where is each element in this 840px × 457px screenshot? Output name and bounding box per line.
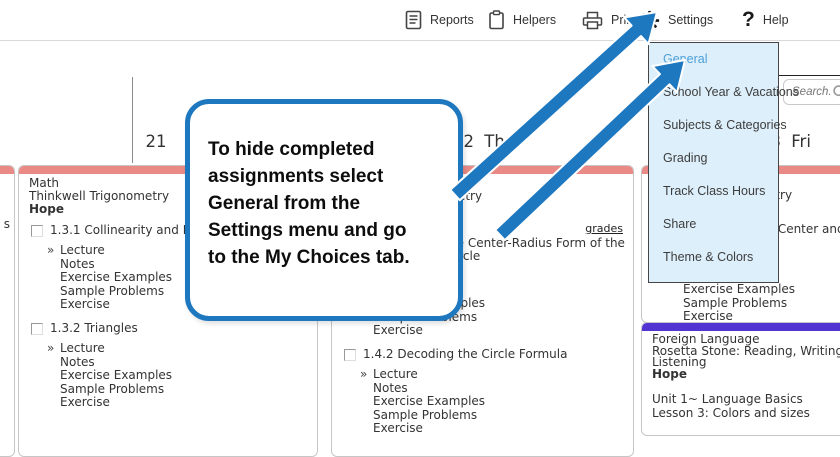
- lesson-section-row: 1.3.2 Triangles: [29, 322, 309, 335]
- lesson-item-link[interactable]: Exercise Examples: [60, 270, 172, 284]
- day-card-previous: s: [0, 165, 15, 457]
- item-marker-icon: »: [360, 368, 367, 382]
- lesson-item-link[interactable]: Exercise: [373, 421, 423, 435]
- lesson-section-title: 1.3.2 Triangles: [50, 322, 138, 335]
- day-card-23-foreign-language: Foreign LanguageRosetta Stone: Reading, …: [641, 322, 840, 436]
- grades-link[interactable]: grades: [585, 222, 623, 235]
- lesson-item-link[interactable]: Notes: [373, 381, 408, 395]
- lesson-item-link[interactable]: Exercise Examples: [60, 368, 172, 382]
- menu-item-track-class-hours[interactable]: Track Class Hours: [649, 175, 778, 208]
- print-button[interactable]: Print: [582, 0, 637, 40]
- menu-item-general[interactable]: General: [649, 43, 778, 76]
- lesson-section-title: 1.4.2 Decoding the Circle Formula: [363, 348, 567, 361]
- lesson-item: Sample Problems: [60, 383, 309, 397]
- lesson-item: »Lecture: [373, 368, 625, 382]
- lesson-line: Unit 1~ Language Basics: [652, 392, 840, 406]
- instruction-callout-text: To hide completed assignments select Gen…: [208, 136, 458, 271]
- menu-item-theme-colors[interactable]: Theme & Colors: [649, 241, 778, 274]
- helpers-button[interactable]: Helpers: [488, 0, 556, 40]
- help-icon: ?: [742, 10, 755, 30]
- lesson-item-link[interactable]: Exercise: [60, 297, 110, 311]
- lesson-item-link[interactable]: Exercise: [60, 395, 110, 409]
- menu-item-share[interactable]: Share: [649, 208, 778, 241]
- lesson-item: Exercise: [373, 324, 625, 338]
- reports-label: Reports: [430, 13, 474, 27]
- lesson-item-link[interactable]: Sample Problems: [60, 284, 164, 298]
- assignment-checkbox[interactable]: [344, 349, 356, 361]
- lesson-item: Notes: [60, 356, 309, 370]
- lesson-item-link[interactable]: Lecture: [373, 367, 418, 381]
- help-label: Help: [763, 13, 789, 27]
- lesson-item-list: »LectureNotesExercise ExamplesSample Pro…: [373, 368, 625, 436]
- helpers-icon: [488, 10, 505, 30]
- menu-item-grading[interactable]: Grading: [649, 142, 778, 175]
- homeschool-planner-app: { "toolbar": { "items": [ {"id": "report…: [0, 0, 840, 420]
- previous-day-text-fragment: s: [0, 215, 14, 231]
- lesson-item-link[interactable]: Exercise: [683, 309, 733, 323]
- settings-label: Settings: [668, 13, 713, 27]
- menu-item-subjects-categories[interactable]: Subjects & Categories: [649, 109, 778, 142]
- settings-gear-icon: [639, 10, 660, 31]
- print-label: Print: [611, 13, 637, 27]
- instruction-callout: To hide completed assignments select Gen…: [185, 99, 463, 321]
- reports-icon: [405, 10, 422, 30]
- lesson-item-list: »LectureNotesExercise ExamplesSample Pro…: [60, 342, 309, 410]
- search-icon[interactable]: [832, 84, 840, 100]
- assignment-checkbox[interactable]: [31, 323, 43, 335]
- lesson-item-link[interactable]: Lecture: [60, 341, 105, 355]
- lesson-item-link[interactable]: Notes: [60, 257, 95, 271]
- item-marker-icon: »: [47, 342, 54, 356]
- lesson-lines: Unit 1~ Language BasicsLesson 3: Colors …: [652, 392, 840, 420]
- lesson-item-link[interactable]: Sample Problems: [683, 296, 787, 310]
- lesson-item: Notes: [373, 382, 625, 396]
- print-icon: [582, 11, 603, 30]
- assignment-checkbox[interactable]: [31, 225, 43, 237]
- settings-dropdown-menu: GeneralSchool Year & VacationsSubjects &…: [648, 42, 779, 283]
- lesson-item-link[interactable]: Exercise Examples: [373, 394, 485, 408]
- helpers-label: Helpers: [513, 13, 556, 27]
- card-header-bar-purple: [642, 323, 840, 331]
- lesson-line: Lesson 3: Colors and sizes: [652, 406, 840, 420]
- lesson-item: »Lecture: [60, 342, 309, 356]
- item-marker-icon: »: [47, 244, 54, 258]
- day-header-21: 21: [136, 132, 176, 151]
- student-name: Hope: [652, 369, 840, 381]
- course-title-line: Rosetta Stone: Reading, Writing, Listeni…: [652, 346, 840, 369]
- lesson-item: Exercise Examples: [373, 395, 625, 409]
- card-header-bar: [0, 166, 14, 174]
- toolbar-divider: [0, 40, 840, 41]
- lesson-section-row: 1.4.2 Decoding the Circle Formula: [342, 348, 625, 361]
- lesson-item-link[interactable]: Notes: [60, 355, 95, 369]
- lesson-item-link[interactable]: Sample Problems: [60, 382, 164, 396]
- lesson-item: Exercise Examples: [683, 283, 840, 297]
- lesson-item-link[interactable]: Exercise: [373, 323, 423, 337]
- menu-item-school-year-vacations[interactable]: School Year & Vacations: [649, 76, 778, 109]
- lesson-item: Sample Problems: [373, 409, 625, 423]
- help-button[interactable]: ? Help: [742, 0, 789, 40]
- lesson-item: Exercise Examples: [60, 369, 309, 383]
- lesson-item: Exercise: [60, 396, 309, 410]
- reports-button[interactable]: Reports: [405, 0, 474, 40]
- settings-button[interactable]: Settings: [639, 0, 713, 40]
- lesson-item-link[interactable]: Lecture: [60, 243, 105, 257]
- lesson-section: 1.4.2 Decoding the Circle Formula»Lectur…: [342, 348, 625, 436]
- day-column-divider: [132, 77, 133, 163]
- lesson-item-link[interactable]: Exercise Examples: [683, 282, 795, 296]
- lesson-section: 1.3.2 Triangles»LectureNotesExercise Exa…: [29, 322, 309, 410]
- lesson-item: Exercise: [373, 422, 625, 436]
- lesson-item: Sample Problems: [683, 297, 840, 311]
